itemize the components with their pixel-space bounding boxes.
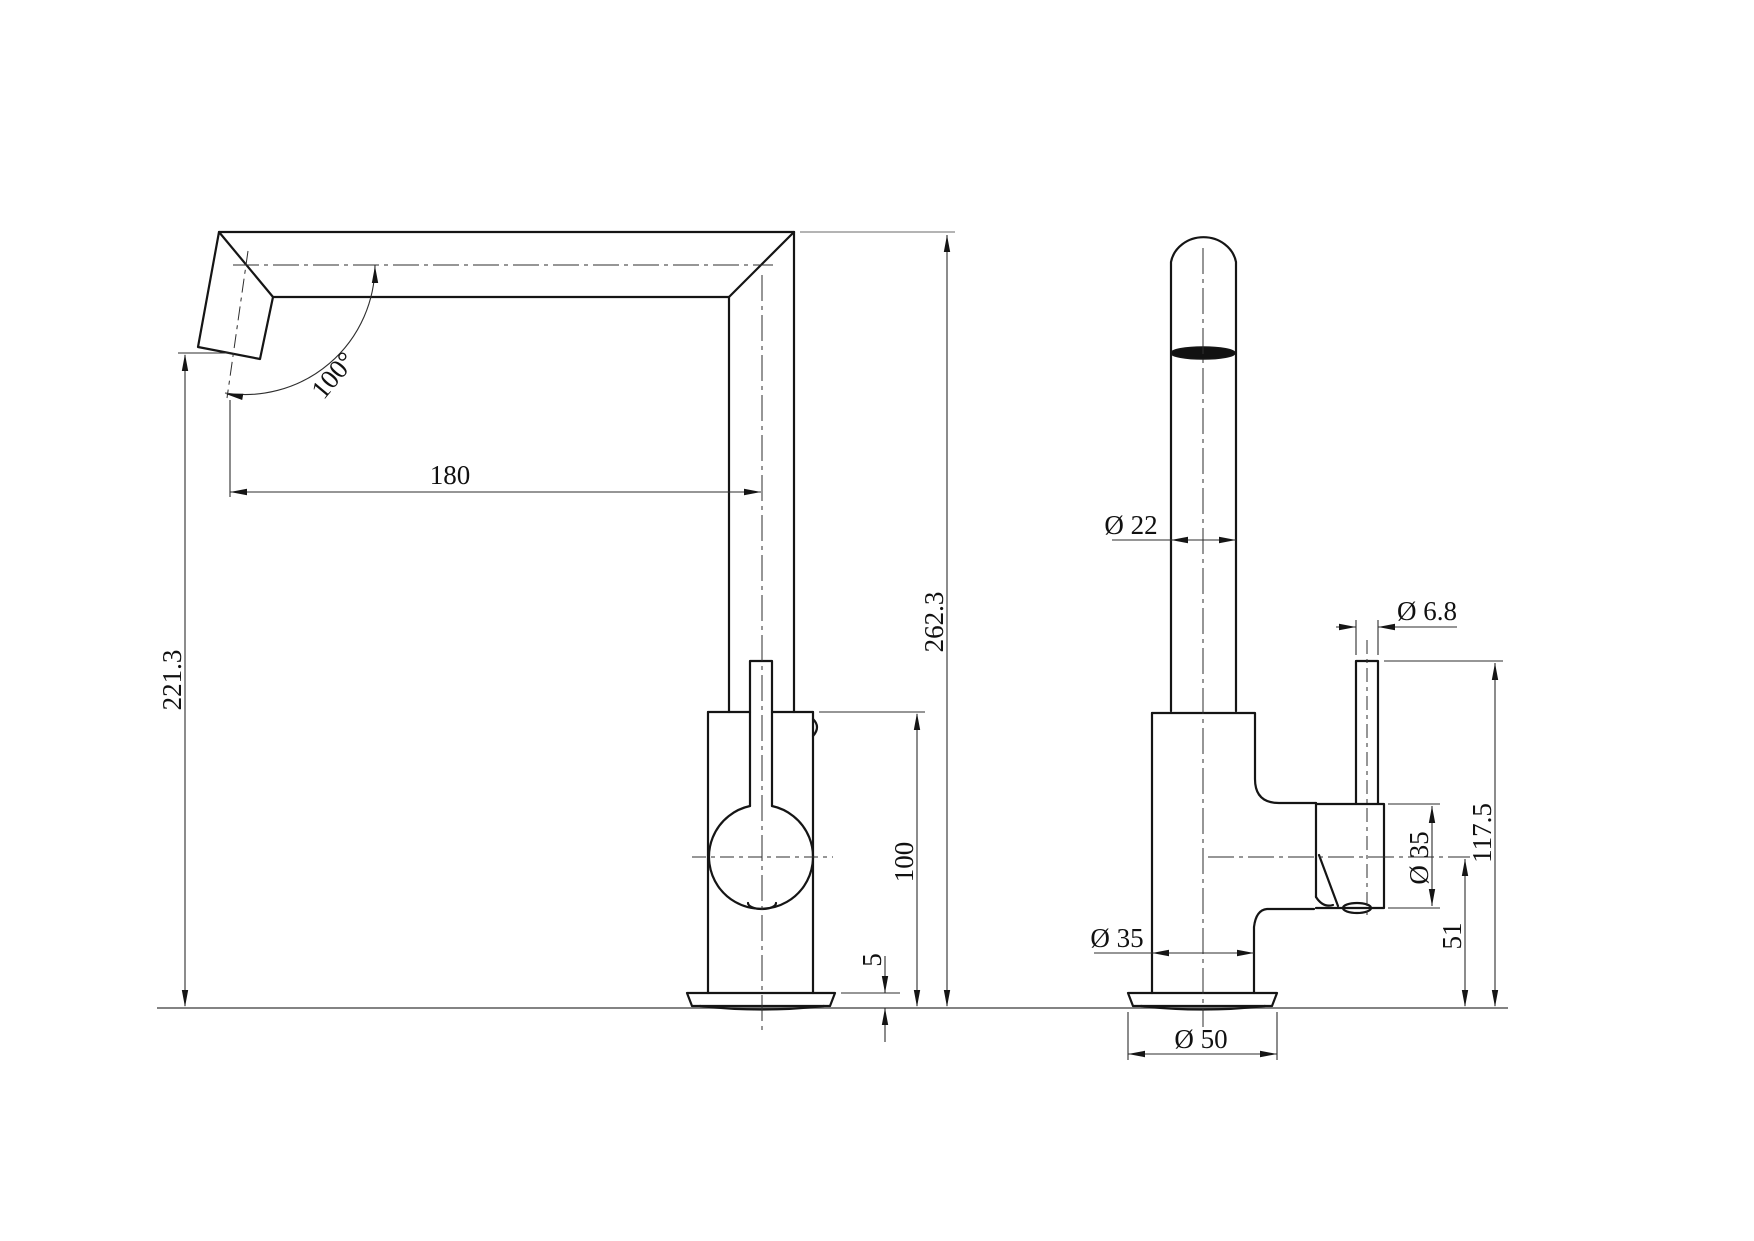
dimension-arrowhead xyxy=(1339,624,1356,630)
handle-stem xyxy=(750,661,772,806)
dimension-arrowheads xyxy=(182,235,1498,1057)
dim-label-base-diameter: Ø 50 xyxy=(1174,1024,1227,1054)
dimension-arrowhead xyxy=(1492,663,1498,680)
dimension-arrowhead xyxy=(1152,950,1169,956)
dim-outlet-height: 221.3 xyxy=(157,353,230,1006)
dim-label-base-thickness: 5 xyxy=(857,953,887,967)
boss-fillet-arc xyxy=(1316,897,1333,906)
front-view-centerlines xyxy=(227,251,833,1032)
dimension-arrowhead xyxy=(1260,1051,1277,1057)
front-view: 180 100° 221.3 262.3 100 5 xyxy=(157,232,955,1042)
faucet-technical-drawing: 180 100° 221.3 262.3 100 5 xyxy=(0,0,1754,1241)
dimension-arrowhead xyxy=(372,266,378,283)
dim-label-spout-diameter: Ø 22 xyxy=(1104,510,1157,540)
dimension-arrowhead xyxy=(944,235,950,252)
dim-handle-height: 117.5 xyxy=(1384,661,1503,1006)
dimension-arrowhead xyxy=(882,976,888,993)
front-view-outline xyxy=(198,232,835,1010)
dimension-arrowhead xyxy=(1429,806,1435,823)
dim-label-axis-height: 51 xyxy=(1437,923,1467,950)
dim-label-handle-height: 117.5 xyxy=(1467,803,1497,863)
dim-spout-reach: 180 xyxy=(230,400,761,497)
dimension-arrowhead xyxy=(744,489,761,495)
dim-overall-height: 262.3 xyxy=(800,232,955,1006)
dimension-arrowhead xyxy=(1462,990,1468,1007)
dim-axis-height: 51 xyxy=(1437,859,1467,1006)
dim-label-body-diameter: Ø 35 xyxy=(1090,923,1143,953)
dim-label-rod-diameter: Ø 6.8 xyxy=(1397,596,1457,626)
dimension-arrowhead xyxy=(882,1008,888,1025)
dim-label-spout-reach: 180 xyxy=(430,460,471,490)
dim-label-outlet-height: 221.3 xyxy=(157,650,187,711)
dim-label-overall-height: 262.3 xyxy=(919,592,949,653)
handle-boss xyxy=(1316,804,1384,908)
boss-diagonal xyxy=(1319,855,1338,906)
base-plate xyxy=(687,993,835,1006)
body-top-and-ledge xyxy=(1152,713,1316,803)
dim-label-body-height: 100 xyxy=(889,842,919,883)
dimension-arrowhead xyxy=(1378,624,1395,630)
dim-rod-diameter: Ø 6.8 xyxy=(1336,596,1457,655)
dim-body-diameter: Ø 35 xyxy=(1090,923,1254,953)
side-view-centerlines xyxy=(1203,248,1470,1027)
dimension-arrowhead xyxy=(226,394,243,400)
dim-label-boss-diameter: Ø 35 xyxy=(1404,831,1434,884)
dimension-arrowhead xyxy=(914,990,920,1007)
dim-base-thickness: 5 xyxy=(841,953,900,1042)
outlet-axis-centerline xyxy=(227,251,248,398)
dimension-arrowhead xyxy=(944,990,950,1007)
body-lower-right-edge xyxy=(1254,909,1314,993)
side-view: Ø 22 Ø 6.8 Ø 35 51 117.5 Ø 35 xyxy=(1090,237,1503,1060)
dimension-arrowhead xyxy=(1237,950,1254,956)
side-view-outline xyxy=(1128,237,1384,1009)
dimension-arrowhead xyxy=(1429,889,1435,906)
dimension-arrowhead xyxy=(230,489,247,495)
dimension-arrowhead xyxy=(182,354,188,371)
dimension-arrowhead xyxy=(182,990,188,1007)
dim-spout-angle: 100° xyxy=(225,265,375,405)
dimension-arrowhead xyxy=(1492,990,1498,1007)
dimension-arrowhead xyxy=(1128,1051,1145,1057)
dimension-arrowhead xyxy=(1219,537,1236,543)
dimension-arrowhead xyxy=(1171,537,1188,543)
dimension-arrowhead xyxy=(914,713,920,730)
dim-label-spout-angle: 100° xyxy=(305,346,361,405)
